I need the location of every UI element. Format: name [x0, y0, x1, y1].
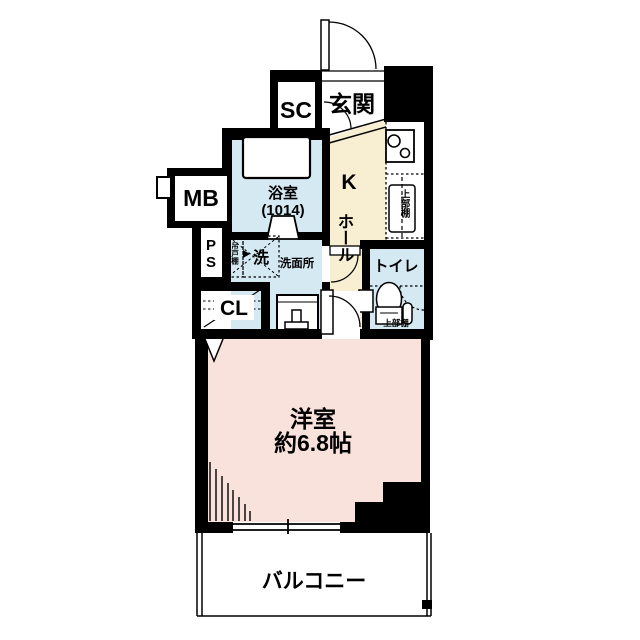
label-washer: 洗 [253, 248, 269, 267]
wall-step-2 [355, 502, 430, 522]
label-meter-box: MB [183, 185, 219, 211]
wall-room-top-east [360, 329, 433, 339]
wall-toilet-left-lower [362, 311, 370, 339]
label-bathroom: 浴室 [268, 184, 298, 202]
hall-door-opening [330, 291, 360, 339]
stove-burner-small [401, 149, 410, 158]
wall-ps-left [192, 228, 201, 285]
label-closet: CL [220, 297, 248, 320]
label-main-room-size: 約6.8帖 [274, 430, 352, 456]
wall-bath-bottom-right [298, 232, 330, 240]
label-kitchen: K [341, 171, 356, 194]
label-bathroom-size: (1014) [261, 202, 304, 219]
label-toilet: トイレ [373, 258, 418, 275]
label-washroom: 洗面所 [280, 256, 315, 270]
wall-toilet-top [360, 240, 433, 249]
label-hall: ホール [335, 213, 354, 263]
wall-cl-top [192, 282, 270, 291]
stove-burner-large [388, 135, 400, 147]
wall-bottom-west [195, 522, 233, 533]
toilet-door-leaf [359, 290, 373, 312]
label-pipe-space: PS [203, 237, 220, 271]
wall-pillar-northeast [384, 66, 433, 122]
floor-plan: SC 玄関 MB 浴室 (1014) K ホール 上部棚 PS 吊戸棚 洗 洗面… [0, 0, 640, 640]
wall-right-upper [424, 122, 433, 340]
label-balcony: バルコニー [262, 570, 367, 593]
label-shoe-closet: SC [280, 97, 312, 123]
label-hanging-cupboard: 吊戸棚 [230, 242, 239, 266]
label-entrance: 玄関 [329, 91, 375, 117]
faucet-base [285, 322, 308, 329]
label-upper-shelf-toilet: 上部棚 [383, 318, 409, 328]
label-main-room: 洋室 [290, 406, 336, 432]
meter-box-notch [157, 177, 171, 198]
front-door-leaf [321, 20, 329, 70]
wall-room-left [195, 329, 208, 533]
wall-hall-west-upper [322, 128, 330, 246]
wall-bottom-east [340, 522, 430, 533]
wall-step-1 [383, 482, 430, 502]
label-upper-shelf-kitchen: 上部棚 [399, 188, 411, 218]
wall-room-right [421, 339, 430, 483]
bathtub [243, 137, 310, 178]
balcony-corner-block [422, 600, 432, 609]
wall-toilet-left-upper [362, 249, 370, 291]
floor-plan-canvas: SC 玄関 MB 浴室 (1014) K ホール 上部棚 PS 吊戸棚 洗 洗面… [0, 0, 640, 640]
bathroom-door [267, 216, 299, 239]
